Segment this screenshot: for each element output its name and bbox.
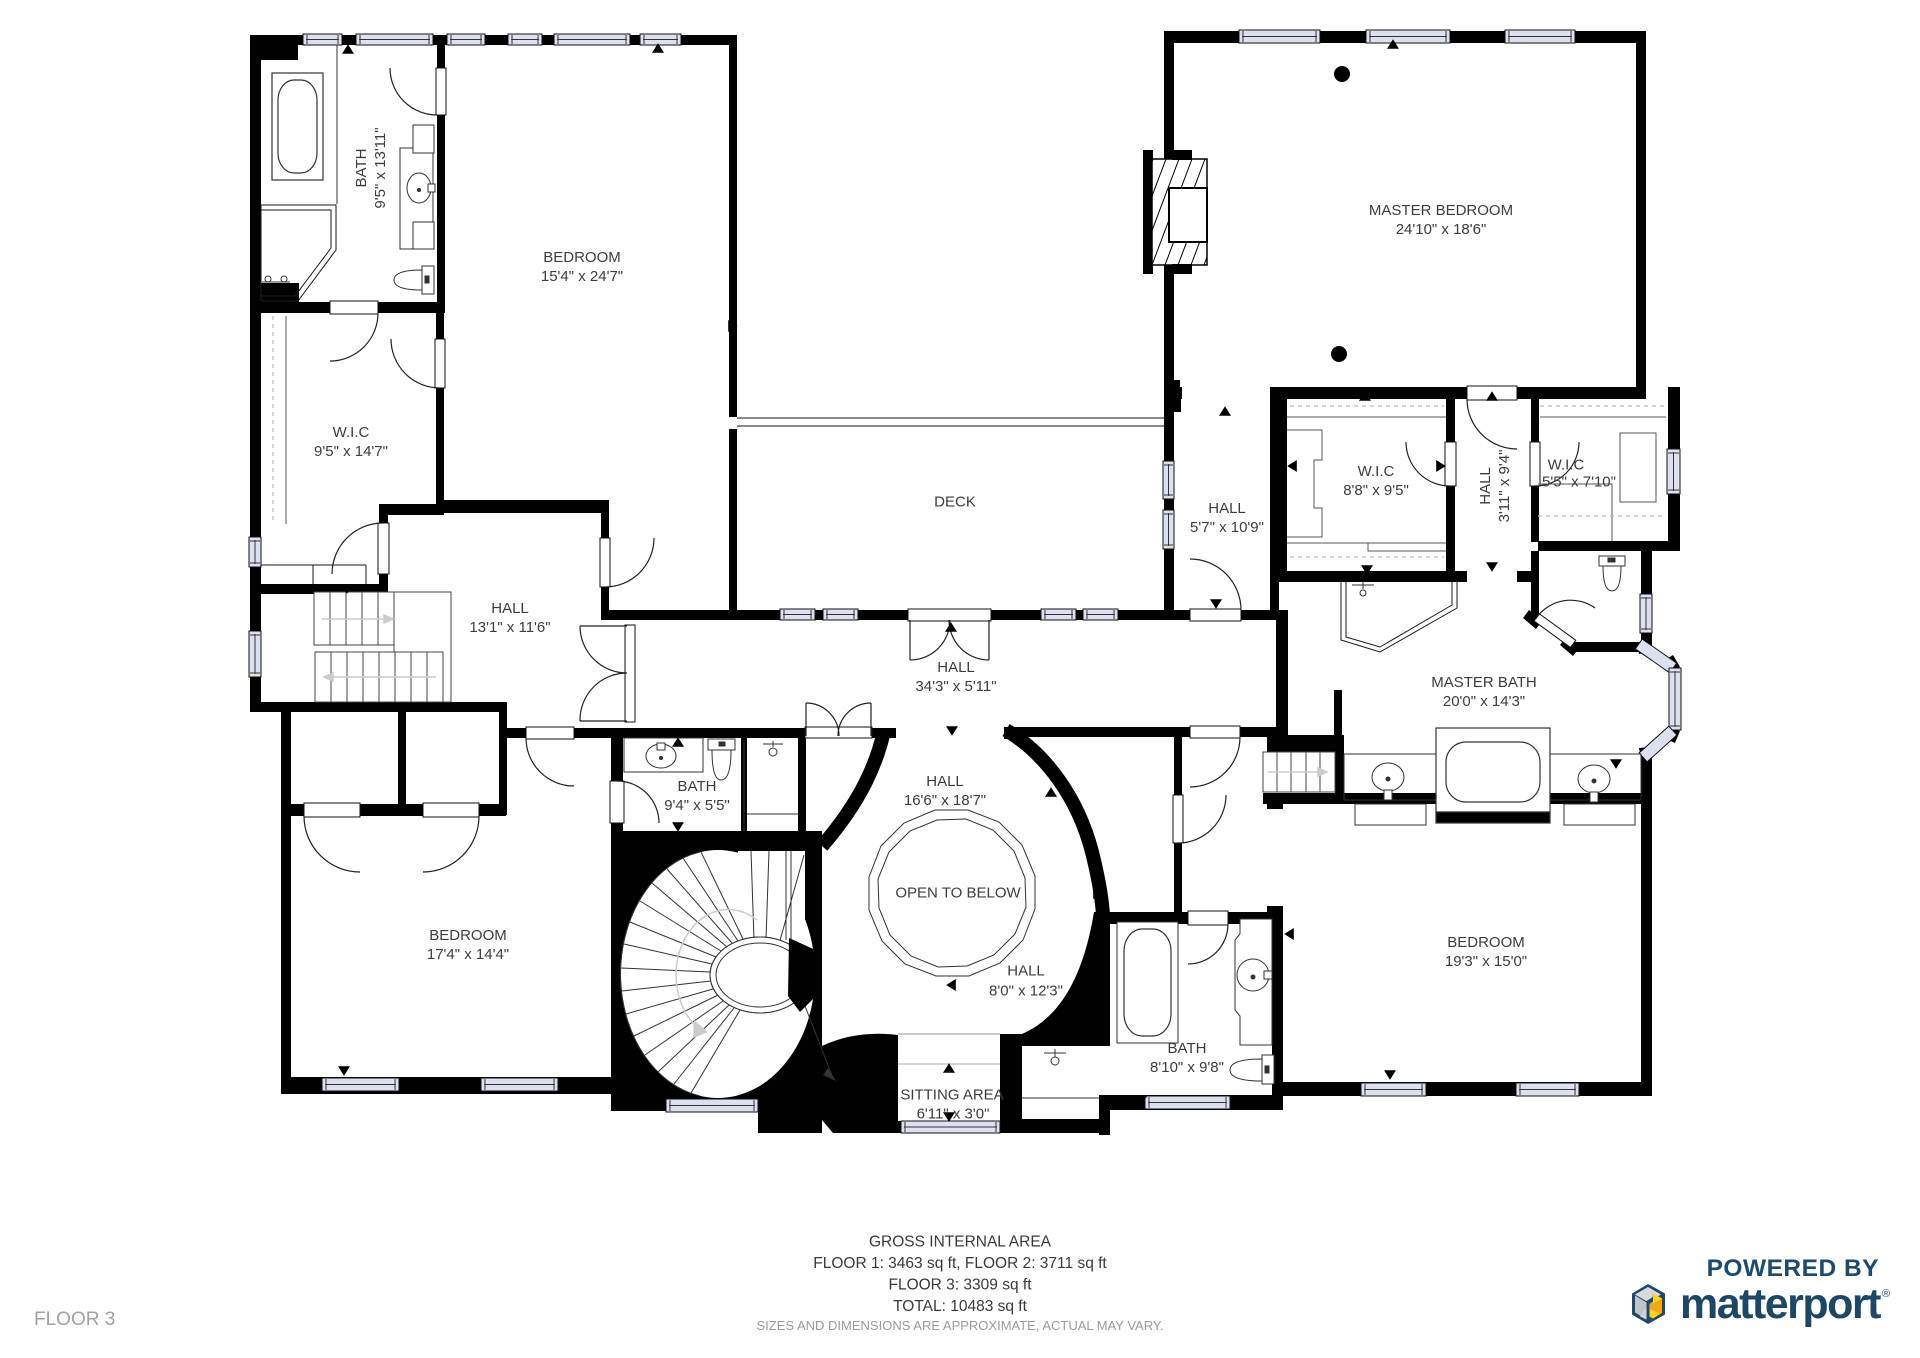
svg-text:HALL: HALL xyxy=(491,600,529,617)
svg-text:BATH: BATH xyxy=(1168,1040,1207,1057)
svg-text:TOTAL: 10483 sq ft: TOTAL: 10483 sq ft xyxy=(893,1298,1028,1315)
svg-text:HALL: HALL xyxy=(1007,962,1045,979)
svg-text:MASTER BEDROOM: MASTER BEDROOM xyxy=(1369,202,1513,219)
svg-text:34'3" x 5'11": 34'3" x 5'11" xyxy=(915,678,996,695)
svg-text:FLOOR 1: 3463 sq ft, FLOOR 2:: FLOOR 1: 3463 sq ft, FLOOR 2: 3711 sq ft xyxy=(813,1255,1107,1272)
svg-text:HALL: HALL xyxy=(926,773,964,790)
svg-text:16'6" x 18'7": 16'6" x 18'7" xyxy=(904,792,986,809)
svg-text:SITTING AREA: SITTING AREA xyxy=(900,1086,1003,1103)
svg-text:5'7" x 10'9": 5'7" x 10'9" xyxy=(1190,519,1264,536)
svg-text:BATH: BATH xyxy=(678,778,717,795)
svg-text:5'5" x 7'10": 5'5" x 7'10" xyxy=(1542,473,1616,490)
svg-text:3'11" x 9'4": 3'11" x 9'4" xyxy=(1496,450,1513,523)
svg-text:BEDROOM: BEDROOM xyxy=(429,927,507,944)
svg-text:HALL: HALL xyxy=(937,659,975,676)
svg-text:POWERED BY: POWERED BY xyxy=(1707,1255,1879,1282)
svg-text:HALL: HALL xyxy=(1208,500,1246,517)
svg-text:8'8" x 9'5": 8'8" x 9'5" xyxy=(1343,482,1409,499)
svg-text:GROSS INTERNAL AREA: GROSS INTERNAL AREA xyxy=(869,1234,1052,1251)
svg-text:SIZES AND DIMENSIONS ARE APPRO: SIZES AND DIMENSIONS ARE APPROXIMATE, AC… xyxy=(757,1318,1164,1333)
svg-text:24'10" x 18'6": 24'10" x 18'6" xyxy=(1396,221,1487,238)
svg-text:15'4" x 24'7": 15'4" x 24'7" xyxy=(541,268,623,285)
svg-text:FLOOR 3: 3309 sq ft: FLOOR 3: 3309 sq ft xyxy=(888,1277,1032,1294)
svg-text:6'11" x 3'0": 6'11" x 3'0" xyxy=(917,1105,990,1122)
svg-text:BEDROOM: BEDROOM xyxy=(543,249,621,266)
svg-text:DECK: DECK xyxy=(934,493,976,510)
svg-text:8'10" x 9'8": 8'10" x 9'8" xyxy=(1150,1059,1224,1076)
svg-text:19'3" x 15'0": 19'3" x 15'0" xyxy=(1445,953,1527,970)
svg-text:17'4" x 14'4": 17'4" x 14'4" xyxy=(427,946,509,963)
svg-text:W.I.C: W.I.C xyxy=(333,424,370,441)
svg-text:20'0" x 14'3": 20'0" x 14'3" xyxy=(1443,693,1525,710)
svg-text:®: ® xyxy=(1882,1288,1890,1300)
svg-text:MASTER BATH: MASTER BATH xyxy=(1431,674,1537,691)
svg-text:OPEN TO BELOW: OPEN TO BELOW xyxy=(895,884,1021,901)
svg-text:HALL: HALL xyxy=(1477,467,1494,505)
svg-text:9'5" x 14'7": 9'5" x 14'7" xyxy=(314,443,388,460)
svg-text:W.I.C: W.I.C xyxy=(1548,456,1585,473)
svg-text:BATH: BATH xyxy=(353,149,370,188)
svg-text:8'0" x 12'3": 8'0" x 12'3" xyxy=(989,982,1063,999)
svg-text:W.I.C: W.I.C xyxy=(1358,463,1395,480)
svg-text:9'5" x 13'11": 9'5" x 13'11" xyxy=(372,127,389,208)
svg-text:9'4" x 5'5": 9'4" x 5'5" xyxy=(664,797,730,814)
svg-text:BEDROOM: BEDROOM xyxy=(1447,934,1525,951)
svg-text:FLOOR 3: FLOOR 3 xyxy=(34,1309,115,1330)
svg-text:13'1" x 11'6": 13'1" x 11'6" xyxy=(469,619,550,636)
svg-text:matterport: matterport xyxy=(1680,1280,1881,1328)
